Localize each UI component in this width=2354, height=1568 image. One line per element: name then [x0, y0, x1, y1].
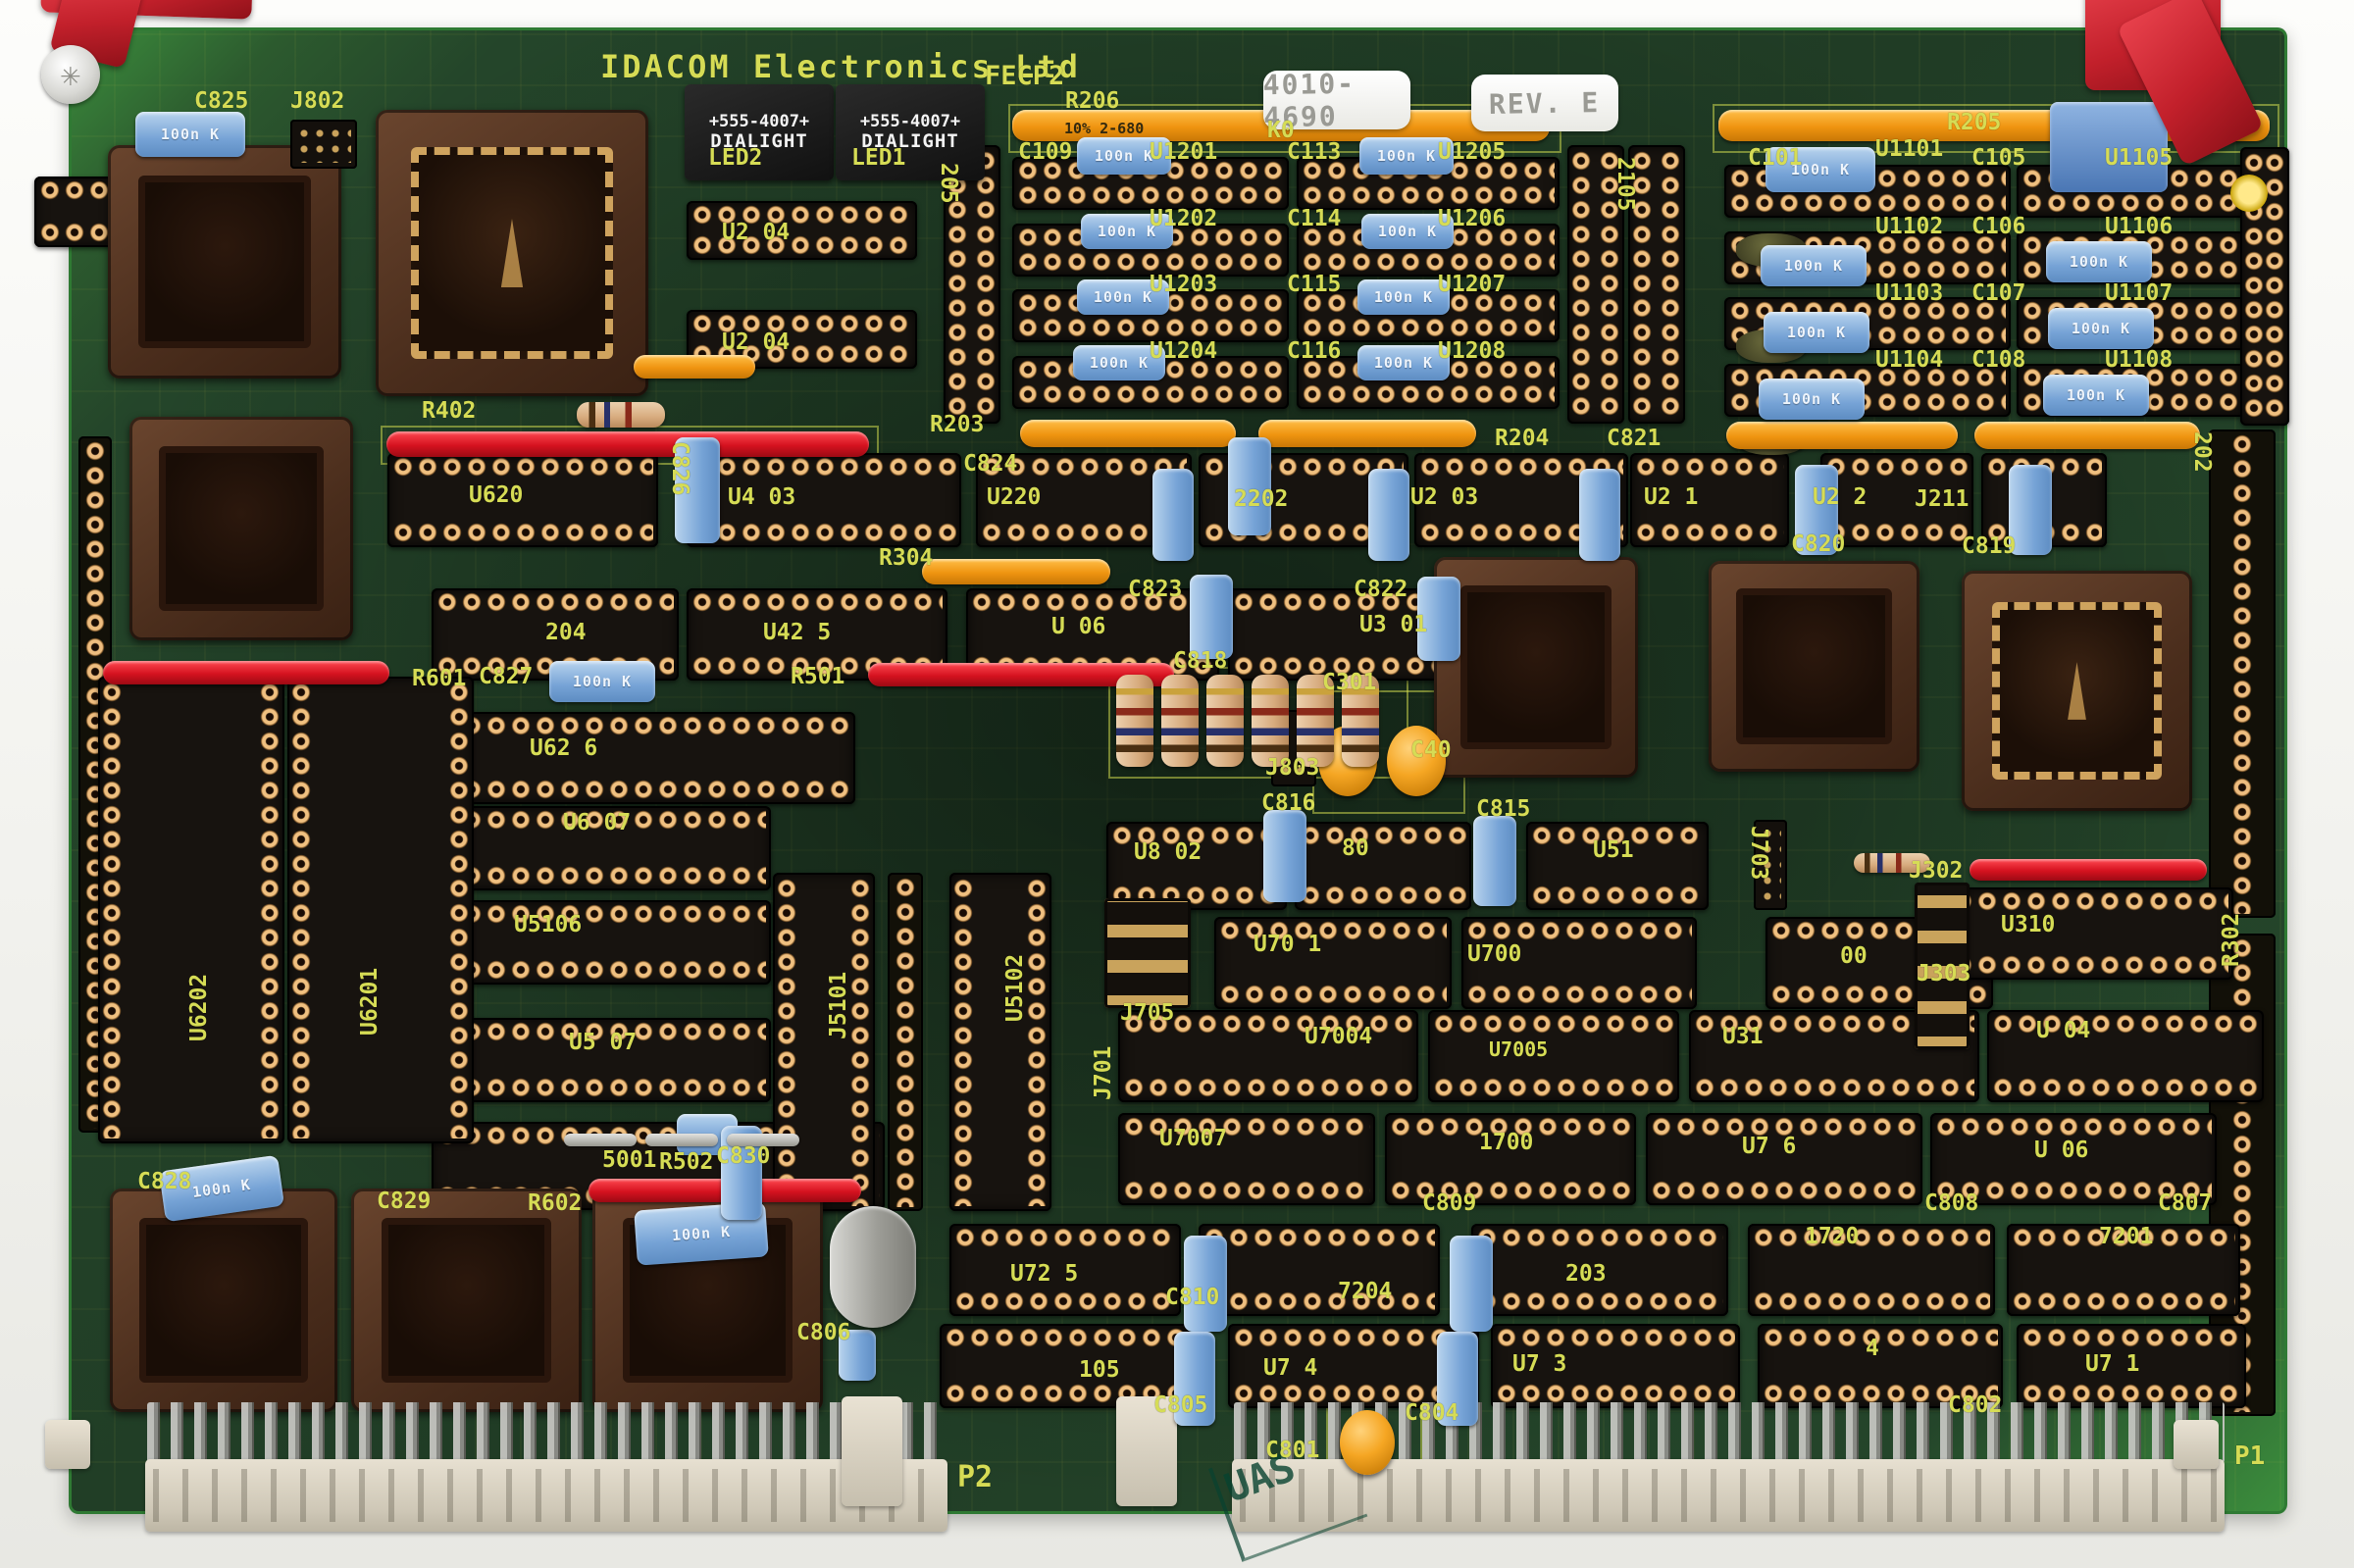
silkscreen-label: C805	[1153, 1394, 1207, 1417]
silkscreen-label: U700	[1467, 943, 1521, 966]
plcc-socket	[376, 110, 648, 396]
ceramic-capacitor-blue-vertical	[1152, 469, 1194, 561]
silkscreen-label: C818	[1173, 650, 1227, 673]
capacitor-marking: 100n K	[1098, 223, 1156, 240]
ceramic-capacitor-blue: 100n K	[1761, 245, 1867, 286]
silkscreen-label: 10% 2-680	[1064, 122, 1144, 136]
silkscreen-label: R206	[1065, 90, 1119, 113]
dip-socket-vertical	[949, 873, 1051, 1211]
silkscreen-label: 7204	[1338, 1281, 1392, 1303]
connector-mount-block	[2174, 1420, 2219, 1469]
silkscreen-label: U1102	[1875, 216, 1943, 238]
silkscreen-label: U7 4	[1263, 1357, 1317, 1380]
silkscreen-label: R203	[930, 414, 984, 436]
silkscreen-label: U1203	[1150, 274, 1217, 296]
sip-resistor-network-orange	[922, 559, 1110, 584]
jumper-wire	[645, 1134, 718, 1146]
silkscreen-label: U1101	[1875, 138, 1943, 161]
silkscreen-label: U6 07	[563, 812, 631, 835]
silkscreen-label: C826	[668, 441, 691, 495]
silkscreen-label: C822	[1354, 579, 1407, 601]
silkscreen-label: C107	[1971, 282, 2025, 305]
capacitor-marking: 100n K	[2072, 320, 2130, 337]
silkscreen-label: 202	[2190, 431, 2213, 473]
ceramic-capacitor-blue-vertical	[1263, 810, 1306, 902]
axial-resistor-vertical	[1161, 675, 1199, 767]
ceramic-capacitor-blue: 100n K	[2048, 308, 2154, 349]
silkscreen-label: C114	[1287, 208, 1341, 230]
silkscreen-label: U7007	[1159, 1128, 1227, 1150]
silkscreen-label: C108	[1971, 349, 2025, 372]
ceramic-capacitor-blue: 100n K	[2046, 241, 2152, 282]
silkscreen-label: U2 04	[722, 331, 790, 354]
silkscreen-label: U42 5	[763, 622, 831, 644]
silkscreen-label: U72 5	[1010, 1263, 1078, 1286]
plcc-socket	[110, 1189, 337, 1412]
ceramic-capacitor-blue-vertical	[1450, 1236, 1493, 1332]
silkscreen-label: 7201	[2099, 1226, 2153, 1248]
dip-socket	[1295, 822, 1471, 910]
silkscreen-label: U4 03	[728, 486, 795, 509]
ceramic-capacitor-blue: 100n K	[135, 112, 245, 157]
connector-mount-block	[45, 1420, 90, 1469]
silkscreen-label: C827	[479, 666, 533, 688]
capacitor-marking: 100n K	[1374, 354, 1433, 372]
silkscreen-label: U8 02	[1134, 841, 1202, 864]
sip-resistor-network-orange	[1258, 420, 1476, 447]
silkscreen-label: U1204	[1150, 340, 1217, 363]
silkscreen-label: U1207	[1438, 274, 1506, 296]
capacitor-marking: 100n K	[1787, 324, 1846, 341]
silkscreen-label: P2	[957, 1463, 993, 1492]
pin-header	[290, 120, 357, 169]
silkscreen-label: U1206	[1438, 208, 1506, 230]
silkscreen-label: U310	[2001, 914, 2055, 936]
din-connector	[145, 1459, 947, 1532]
silkscreen-label: 1700	[1479, 1132, 1533, 1154]
crystal-oscillator	[830, 1206, 916, 1328]
silkscreen-label: U7 3	[1512, 1353, 1566, 1376]
silkscreen-label: 5001	[602, 1149, 656, 1172]
silkscreen-label: R502	[659, 1151, 713, 1174]
silkscreen-label: 00	[1840, 945, 1868, 968]
silkscreen-label: R204	[1495, 428, 1549, 450]
silkscreen-label: C821	[1607, 428, 1661, 450]
silkscreen-label: C830	[716, 1145, 770, 1168]
silkscreen-label: U620	[469, 484, 523, 507]
led-module-part-number: +555-4007+	[860, 114, 960, 130]
silkscreen-label: C101	[1748, 147, 1802, 170]
silkscreen-label: U2 04	[722, 222, 790, 244]
capacitor-marking: 100n K	[671, 1223, 731, 1244]
pin-strip	[888, 873, 923, 1211]
silkscreen-label: U1106	[2105, 216, 2173, 238]
silkscreen-label: C301	[1322, 672, 1376, 694]
sip-resistor-network-orange	[1974, 422, 2200, 449]
silkscreen-label: 1720	[1805, 1226, 1859, 1248]
silkscreen-label: LED1	[851, 147, 905, 170]
sip-resistor-network-red	[103, 661, 389, 684]
connector-mount-block	[842, 1396, 902, 1506]
dip-socket-vertical	[98, 677, 284, 1143]
led-module-part-number: +555-4007+	[709, 114, 809, 130]
dip-socket	[432, 712, 855, 804]
silkscreen-label: U 06	[2034, 1139, 2088, 1162]
silkscreen-label: C113	[1287, 141, 1341, 164]
dip-socket	[1118, 1113, 1375, 1205]
capacitor-marking: 100n K	[2070, 253, 2128, 271]
silkscreen-label: FECP2	[985, 63, 1064, 89]
plcc-socket	[1709, 561, 1919, 772]
silkscreen-label: J302	[1909, 860, 1963, 883]
circuit-board: 4010-4690REV. EUAS+555-4007+DIALIGHT+555…	[69, 27, 2287, 1514]
silkscreen-label: C810	[1165, 1287, 1219, 1309]
silkscreen-label: U7 6	[1742, 1136, 1796, 1158]
capacitor-marking: 100n K	[1378, 223, 1437, 240]
dip-socket-vertical	[773, 873, 875, 1211]
silkscreen-label: R304	[879, 547, 933, 570]
silkscreen-label: R601	[412, 668, 466, 690]
ceramic-capacitor-blue-vertical	[1190, 575, 1233, 659]
silkscreen-label: R205	[1947, 112, 2001, 134]
silkscreen-label: C115	[1287, 274, 1341, 296]
silkscreen-label: J303	[1917, 963, 1970, 986]
silkscreen-label: U1105	[2105, 147, 2173, 170]
ceramic-capacitor-blue: 100n K	[1357, 279, 1450, 315]
silkscreen-label: P1	[2234, 1443, 2265, 1469]
silkscreen-label: U1104	[1875, 349, 1943, 372]
silkscreen-label: U2 2	[1813, 486, 1867, 509]
silkscreen-label: J701	[1093, 1046, 1115, 1100]
silkscreen-label: J703	[1747, 826, 1769, 880]
silkscreen-label: C824	[963, 453, 1017, 476]
silkscreen-label: U31	[1722, 1026, 1764, 1048]
silkscreen-label: U5 07	[569, 1032, 637, 1054]
axial-resistor	[577, 402, 665, 428]
silkscreen-label: U5106	[514, 914, 582, 936]
silkscreen-label: U70 1	[1254, 934, 1321, 956]
capacitor-marking: 100n K	[1377, 147, 1436, 165]
dip-socket	[1214, 917, 1452, 1009]
silkscreen-label: C825	[194, 90, 248, 113]
plcc-socket	[129, 417, 353, 640]
silkscreen-label: J705	[1120, 1002, 1174, 1025]
ceramic-capacitor-blue: 100n K	[549, 661, 655, 702]
plcc-socket	[351, 1189, 582, 1412]
silkscreen-label: R402	[422, 400, 476, 423]
silkscreen-label: LED2	[708, 147, 762, 170]
sip-resistor-network-red	[1970, 859, 2207, 881]
silkscreen-label: U3 01	[1359, 614, 1427, 636]
jumper-block	[1104, 898, 1191, 1008]
screw	[41, 45, 100, 104]
silkscreen-label: 80	[1342, 837, 1369, 860]
dip-socket	[1199, 1224, 1440, 1316]
silkscreen-label: U1108	[2105, 349, 2173, 372]
silkscreen-label: C823	[1128, 579, 1182, 601]
capacitor-marking: 100n K	[573, 673, 632, 690]
dip-socket	[1987, 1010, 2264, 1102]
silkscreen-label: C105	[1971, 147, 2025, 170]
silkscreen-label: U5102	[1004, 954, 1027, 1022]
jumper-wire	[564, 1134, 637, 1146]
silkscreen-label: C816	[1261, 792, 1315, 815]
capacitor-marking: 100n K	[1090, 354, 1149, 372]
silkscreen-label: U2 1	[1644, 486, 1698, 509]
sip-resistor-network-orange	[1726, 422, 1958, 449]
silkscreen-label: 2202	[1234, 488, 1288, 511]
capacitor-marking: 100n K	[1374, 288, 1433, 306]
silkscreen-label: U7004	[1305, 1026, 1372, 1048]
axial-resistor-vertical	[1116, 675, 1153, 767]
capacitor-marking: 100n K	[2067, 386, 2125, 404]
axial-resistor-vertical	[1206, 675, 1244, 767]
capacitor-marking: 100n K	[161, 126, 220, 143]
silkscreen-label: 204	[545, 622, 587, 644]
silkscreen-label: 2105	[1613, 157, 1636, 211]
silkscreen-label: U7 1	[2085, 1353, 2139, 1376]
silkscreen-label: 205	[937, 163, 959, 204]
silkscreen-label: R302	[2221, 913, 2243, 967]
silkscreen-label: J803	[1265, 757, 1319, 780]
ceramic-capacitor-blue: 100n K	[2043, 375, 2149, 416]
dip-socket-vertical	[287, 677, 474, 1143]
silkscreen-label: U51	[1593, 839, 1634, 862]
ceramic-capacitor-blue: 100n K	[1764, 312, 1869, 353]
ceramic-capacitor-blue-vertical	[1368, 469, 1409, 561]
silkscreen-label: U1205	[1438, 141, 1506, 164]
ceramic-capacitor-blue: 100n K	[1357, 345, 1450, 380]
silkscreen-label: C804	[1405, 1402, 1458, 1425]
silkscreen-label: U 04	[2036, 1020, 2090, 1042]
silkscreen-label: C106	[1971, 216, 2025, 238]
silkscreen-label: R501	[791, 666, 844, 688]
sip-resistor-network-orange	[634, 355, 755, 379]
silkscreen-label: C820	[1791, 533, 1845, 556]
silkscreen-label: C819	[1962, 535, 2016, 558]
dip-socket	[432, 900, 771, 985]
silkscreen-label: 4	[1866, 1338, 1879, 1360]
silkscreen-label: U7005	[1489, 1039, 1548, 1059]
sticker-text: REV. E	[1489, 86, 1601, 121]
sticker-label: REV. E	[1471, 75, 1618, 131]
capacitor-marking: 100n K	[1094, 288, 1152, 306]
ceramic-capacitor-blue: 100n K	[1759, 379, 1865, 420]
ceramic-capacitor-blue-vertical	[1473, 816, 1516, 906]
silkscreen-label: U2 03	[1410, 486, 1478, 509]
pcb-photo: 4010-4690REV. EUAS+555-4007+DIALIGHT+555…	[0, 0, 2354, 1568]
silkscreen-label: C109	[1018, 141, 1072, 164]
silkscreen-label: C116	[1287, 340, 1341, 363]
silkscreen-label: U 06	[1051, 616, 1105, 638]
mounting-hole	[2230, 175, 2268, 212]
plcc-socket	[1962, 571, 2192, 811]
dip-socket	[1748, 1224, 1995, 1316]
silkscreen-label: J802	[290, 90, 344, 113]
silkscreen-label: C815	[1476, 798, 1530, 821]
silkscreen-label: U6201	[359, 968, 382, 1036]
silkscreen-label: U62 6	[530, 737, 597, 760]
silkscreen-label: C802	[1948, 1394, 2002, 1417]
silkscreen-label: U6202	[188, 974, 211, 1041]
silkscreen-label: C829	[377, 1190, 431, 1213]
ceramic-capacitor-blue-vertical	[1184, 1236, 1227, 1332]
silkscreen-label: 105	[1079, 1359, 1120, 1382]
plcc-socket	[1434, 557, 1638, 778]
silkscreen-label: U1202	[1150, 208, 1217, 230]
silkscreen-label: U1201	[1150, 141, 1217, 164]
silkscreen-label: R602	[528, 1192, 582, 1215]
silkscreen-label: C807	[2158, 1192, 2212, 1215]
silkscreen-label: J211	[1915, 488, 1969, 511]
silkscreen-label: C806	[796, 1322, 850, 1344]
silkscreen-label: U1107	[2105, 282, 2173, 305]
silkscreen-label: C40	[1410, 739, 1452, 762]
connector-pins	[147, 1402, 947, 1463]
ceramic-capacitor-blue-vertical	[1579, 469, 1620, 561]
plcc-socket	[108, 145, 341, 379]
dip-socket	[1947, 887, 2233, 980]
pin-strip	[2209, 430, 2276, 918]
capacitor-marking: 100n K	[1095, 147, 1153, 165]
dip-socket	[1646, 1113, 1922, 1205]
silkscreen-label: U1208	[1438, 340, 1506, 363]
silkscreen-label: U1103	[1875, 282, 1943, 305]
silkscreen-label: C808	[1924, 1192, 1978, 1215]
silkscreen-label: C809	[1422, 1192, 1476, 1215]
silkscreen-label: 203	[1565, 1263, 1607, 1286]
silkscreen-label: U220	[987, 486, 1041, 509]
dip-socket	[1106, 822, 1287, 910]
silkscreen-label: C801	[1265, 1440, 1319, 1462]
sip-resistor-network-red	[386, 431, 869, 457]
silkscreen-label: C828	[137, 1171, 191, 1193]
sip-resistor-network-orange	[1020, 420, 1236, 447]
axial-resistor-vertical	[1252, 675, 1289, 767]
capacitor-marking: 100n K	[1784, 257, 1843, 275]
dip-socket	[1428, 1010, 1679, 1102]
dip-socket	[1526, 822, 1709, 910]
silkscreen-label: J5101	[828, 972, 850, 1039]
capacitor-marking: 100n K	[191, 1176, 252, 1201]
capacitor-marking: 100n K	[1782, 390, 1841, 408]
